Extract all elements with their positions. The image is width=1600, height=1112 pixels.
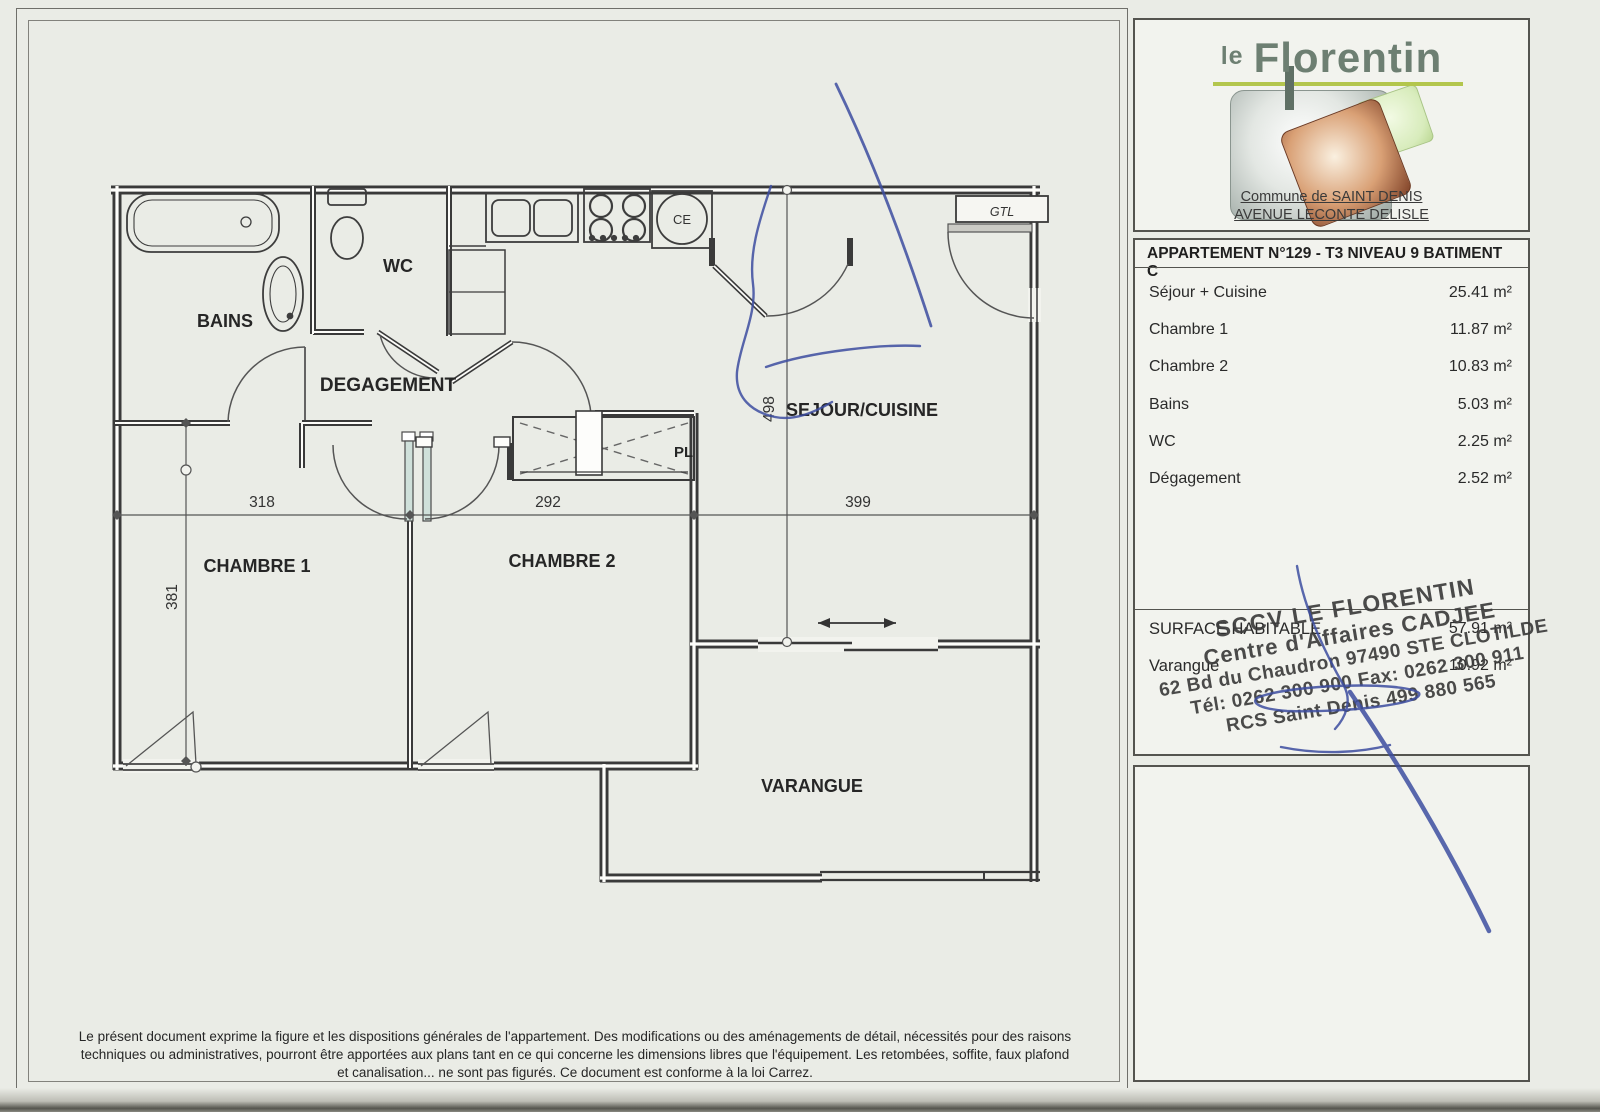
brand-florentin: Florentin (1254, 34, 1443, 81)
label-bains: BAINS (197, 311, 253, 331)
chambre2-door-leaf (423, 441, 431, 521)
brand-wordmark: leFlorentin (1135, 34, 1528, 82)
label-varangue: VARANGUE (761, 776, 863, 796)
entrance-door-arc (948, 232, 1034, 318)
room-row: Chambre 1 11.87 m² (1135, 321, 1528, 343)
label-chambre1: CHAMBRE 1 (203, 556, 310, 576)
site-plan-panel (1133, 765, 1530, 1082)
varangue-railing (820, 872, 1040, 880)
label-pl: PL (674, 444, 693, 461)
exterior-wall-cores (111, 186, 1040, 882)
interior-walls (115, 186, 850, 768)
room-label: Bains (1149, 396, 1189, 414)
bathroom-sink (263, 257, 303, 331)
room-area: 2.25 m² (1458, 433, 1512, 451)
dimension-lines (115, 186, 1034, 767)
brand-le: le (1221, 42, 1244, 70)
room-row: Chambre 2 10.83 m² (1135, 358, 1528, 380)
room-label: Dégagement (1149, 470, 1241, 488)
apartment-title: APPARTEMENT N°129 - T3 NIVEAU 9 BATIMENT… (1147, 245, 1516, 281)
label-degagement: DEGAGEMENT (320, 375, 457, 396)
address-line-2: AVENUE LECONTE DELISLE (1135, 206, 1528, 224)
scan-edge-shadow (0, 1088, 1600, 1112)
room-labels: BAINS WC DEGAGEMENT SEJOUR/CUISINE CHAMB… (197, 256, 938, 796)
entrance-door-leaf (948, 224, 1032, 232)
room-label: Chambre 1 (1149, 321, 1228, 339)
label-chambre2: CHAMBRE 2 (508, 551, 615, 571)
pl-closet (513, 411, 694, 480)
room-row: WC 2.25 m² (1135, 433, 1528, 455)
dim-292: 292 (535, 494, 561, 511)
disclaimer-line-3: et canalisation... ne sont pas figurés. … (32, 1064, 1118, 1082)
room-row: Séjour + Cuisine 25.41 m² (1135, 284, 1528, 306)
room-label: Chambre 2 (1149, 358, 1228, 376)
room-area: 5.03 m² (1458, 396, 1512, 414)
dim-381: 381 (164, 584, 181, 610)
toilet-bowl (331, 217, 363, 259)
address-line-1: Commune de SAINT DENIS (1135, 188, 1528, 206)
room-area: 2.52 m² (1458, 470, 1512, 488)
dim-399: 399 (845, 494, 871, 511)
project-address: Commune de SAINT DENIS AVENUE LECONTE DE… (1135, 188, 1528, 224)
header-divider (1135, 267, 1528, 268)
windows (123, 288, 1041, 880)
gtl-label: GTL (990, 205, 1014, 219)
ce-label: CE (673, 212, 691, 227)
room-area: 25.41 m² (1449, 284, 1512, 302)
room-label: Séjour + Cuisine (1149, 284, 1267, 302)
scanned-floorplan-page: { "logo_panel": { "brand_small": "le", "… (0, 0, 1600, 1112)
room-area: 10.83 m² (1449, 358, 1512, 376)
chambre1-door-leaf (405, 441, 413, 521)
label-sejour: SEJOUR/CUISINE (786, 400, 938, 420)
room-row: Dégagement 2.52 m² (1135, 470, 1528, 492)
bathtub (127, 194, 279, 252)
room-area: 11.87 m² (1450, 321, 1512, 339)
room-row: Bains 5.03 m² (1135, 396, 1528, 418)
disclaimer-line-1: Le présent document exprime la figure et… (32, 1028, 1118, 1046)
brand-underline (1213, 82, 1463, 86)
room-label: WC (1149, 433, 1176, 451)
dimension-labels: 318 292 399 381 498 (164, 396, 871, 610)
label-wc: WC (383, 256, 413, 276)
dim-318: 318 (249, 494, 275, 511)
dim-498: 498 (761, 396, 778, 422)
exterior-walls (111, 186, 1040, 882)
legal-disclaimer: Le présent document exprime la figure et… (32, 1028, 1118, 1082)
disclaimer-line-2: techniques ou administratives, pourront … (32, 1046, 1118, 1064)
logo-panel: leFlorentin Commune de SAINT DENIS AVENU… (1133, 18, 1530, 232)
